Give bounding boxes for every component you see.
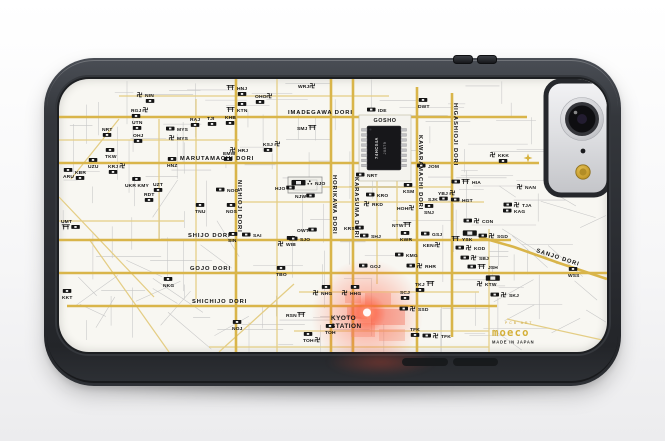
map-label-text: SMJ	[297, 126, 308, 132]
map-label-text: TJI	[207, 116, 215, 122]
shrine-torii-icon	[297, 312, 305, 317]
shrine-torii-icon	[426, 281, 434, 286]
map-label-text: RGJ	[131, 108, 142, 114]
shrine-torii-icon	[308, 125, 316, 130]
temple-manji-icon	[143, 108, 147, 112]
map-label-text: KKK	[498, 153, 509, 159]
temple-manji-icon	[489, 234, 493, 238]
map-label-text: IDE	[378, 108, 387, 114]
map-label-text: OHO	[255, 94, 267, 100]
map-label: TJA	[504, 203, 533, 210]
map-label: KEN	[423, 243, 439, 250]
map-label-text: KSJ	[263, 142, 273, 148]
map-label-text: HNJ	[237, 86, 247, 92]
map-label-text: NTW	[392, 223, 404, 229]
volume-button-1	[453, 55, 473, 64]
map-label: TKJ	[415, 281, 434, 292]
map-label-text: TJA	[522, 203, 532, 209]
map-label: DWT	[418, 98, 430, 110]
map-label-text: HNZ	[167, 163, 178, 169]
map-label-text: WRJ	[298, 84, 309, 90]
temple-manji-icon	[466, 246, 470, 250]
map-label: WRJ	[298, 84, 314, 91]
map-label-text: SNJ	[424, 210, 434, 216]
map-label-text: UKR KMY	[125, 183, 149, 189]
secondary-road	[59, 197, 154, 297]
gosho-label: GOSHO	[373, 118, 396, 124]
map-label-text: DWT	[418, 104, 430, 110]
street-name: SHICHIJO DORI	[192, 299, 247, 305]
map-label-text: NOS	[226, 209, 238, 215]
led-core	[363, 309, 371, 317]
map-label-text: KEN	[423, 243, 434, 249]
map-label: TFK	[423, 334, 452, 341]
map-label: SMJ	[297, 125, 316, 132]
map-label-text: TKW	[105, 154, 117, 160]
map-label: OWT	[297, 228, 317, 234]
temple-manji-icon	[267, 94, 271, 98]
map-label: TKW	[105, 148, 117, 160]
kyoto-pcb-map: NINRGJUTNNRTOHJRAJTJIKHBMYSMYSKTNHNJOHOW…	[59, 79, 607, 352]
map-label: SAI	[242, 233, 262, 239]
kyoto-station-label-line1: KYOTO	[331, 315, 356, 322]
temple-manji-icon	[474, 219, 478, 223]
map-label-text: KHB	[225, 115, 236, 121]
map-label-text: KKT	[62, 295, 73, 301]
map-label-text: GOJ	[370, 264, 381, 270]
map-label: KSM	[403, 183, 414, 195]
secondary-road	[89, 239, 169, 352]
map-label: NTW	[392, 222, 411, 229]
map-label-text: UZT	[153, 182, 163, 188]
castle-dots-icon	[311, 183, 313, 185]
temple-manji-icon	[517, 185, 521, 189]
product-photo-stage: NINRGJUTNNRTOHJRAJTJIKHBMYSMYSKTNHNJOHOW…	[0, 0, 665, 441]
microphone-hole	[581, 149, 586, 154]
map-label: RHR	[407, 264, 437, 271]
map-label-text: OHJ	[133, 133, 144, 139]
map-label: ARU	[63, 168, 74, 180]
bottom-port-slot-2	[453, 358, 498, 366]
brand-logo-text: moeco	[492, 327, 530, 339]
map-label-text: JOM	[428, 164, 439, 170]
map-label: KMG	[395, 253, 418, 259]
map-label-text: HOH	[397, 206, 409, 212]
camera-lens-pupil	[577, 114, 587, 124]
map-label-text: SJK	[428, 197, 438, 203]
map-label: TFK	[410, 327, 420, 337]
map-label-text: OWT	[297, 228, 309, 234]
map-label-text: NIN	[145, 93, 154, 99]
map-label-text: RDT	[144, 192, 155, 198]
map-label-text: SJO	[300, 237, 310, 243]
map-label: KBR	[75, 170, 86, 180]
map-label: NRT	[102, 127, 113, 137]
map-label: HGT	[451, 198, 473, 204]
map-label-text: WSS	[568, 273, 580, 279]
map-label: IDE	[367, 108, 387, 114]
phone-case-bumper: NINRGJUTNNRTOHJRAJTJIKHBMYSMYSKTNHNJOHOW…	[44, 58, 621, 386]
volume-button-2	[477, 55, 497, 64]
shrine-torii-icon	[227, 107, 235, 112]
street-name: NISHIOJI DORI	[236, 180, 242, 233]
map-label-text: ARU	[63, 174, 74, 180]
chip-marking-line2: J0879	[383, 142, 387, 155]
map-label-text: RKD	[372, 202, 383, 208]
map-label-text: SBJ	[479, 256, 489, 262]
map-label-text: MYS	[177, 136, 189, 142]
map-label-text: MYS	[177, 127, 189, 133]
temple-manji-icon	[409, 206, 413, 210]
map-label-text: JSH	[488, 265, 498, 271]
map-label: RAJ	[190, 117, 200, 127]
map-label: CON	[464, 219, 494, 226]
map-label-text: TNU	[195, 209, 206, 215]
map-label-text: SCJ	[400, 290, 410, 296]
map-label-text: TFK	[441, 334, 451, 340]
map-label: UTN	[132, 120, 143, 130]
street-name: MARUTAMACHI DORI	[180, 156, 254, 162]
map-label-text: NHG	[321, 291, 332, 297]
map-label-text: KAG	[514, 209, 525, 215]
map-label: JSH	[468, 264, 499, 271]
map-label: HOH	[397, 206, 413, 213]
street-name: SHIJO DORI	[188, 233, 231, 239]
shrine-torii-icon	[462, 179, 470, 184]
kyoto-station-label-line2: STATION	[331, 323, 362, 330]
temple-manji-icon	[169, 136, 173, 140]
map-label: GSJ	[421, 232, 442, 238]
street-name: HIGASHIOJI DORI	[452, 103, 458, 166]
temple-manji-icon	[275, 142, 279, 146]
temple-manji-icon	[433, 334, 437, 338]
map-label: UZT	[153, 182, 163, 192]
map-label: NOO	[216, 188, 239, 194]
temple-manji-icon	[514, 203, 518, 207]
made-in-japan-text: MADE IN JAPAN	[492, 340, 534, 345]
ic-chip: 74HC04A J0879	[362, 126, 407, 170]
map-label: KHB	[225, 115, 236, 125]
map-label: RDT	[144, 192, 155, 202]
map-label-text: KTW	[485, 282, 497, 288]
map-label-text: UZU	[88, 164, 99, 170]
map-label: KOD	[456, 246, 486, 253]
map-label: NIN	[137, 93, 154, 103]
map-label: SNJ	[424, 204, 434, 216]
map-label-text: TKJ	[415, 282, 425, 288]
map-label-text: HHG	[350, 291, 361, 297]
map-label-text: RHR	[425, 264, 436, 270]
map-label: NJW	[295, 194, 315, 200]
map-label-text: KSM	[403, 189, 414, 195]
map-label: NKG	[163, 277, 174, 289]
camera-lens-glint	[574, 111, 578, 115]
map-label-text: KMG	[406, 253, 418, 259]
chip-marking-line1: 74HC04A	[374, 137, 379, 159]
map-label-text: SSD	[418, 307, 429, 313]
map-label-text: SGD	[497, 234, 508, 240]
map-label-text: NOJ	[232, 326, 243, 332]
temple-manji-icon	[310, 84, 314, 88]
bottom-port-slot-1	[402, 358, 448, 366]
map-label: MYS	[169, 136, 188, 143]
map-label-text: KRJ	[108, 164, 118, 170]
map-label: KAG	[503, 209, 525, 215]
map-label-text: NAN	[525, 185, 536, 191]
map-label: KWR	[400, 231, 412, 243]
camera-module	[546, 81, 607, 195]
flash-led-center	[579, 168, 586, 175]
map-label-text: TOH	[303, 338, 314, 344]
map-label-text: UMT	[61, 219, 72, 225]
street-name: HORIKAWA DORI	[331, 175, 337, 234]
map-label: NOJ	[232, 320, 243, 332]
temple-manji-icon	[490, 153, 494, 157]
map-label-text: TBO	[276, 272, 287, 278]
map-label-text: YSK	[462, 237, 473, 243]
map-label: RSN	[286, 312, 305, 319]
map-label-text: UTN	[132, 120, 143, 126]
temple-manji-icon	[278, 242, 282, 246]
map-label: OHO	[255, 94, 271, 104]
map-label-text: NKG	[163, 283, 174, 289]
map-label-text: NRT	[102, 127, 113, 133]
map-label: SCJ	[400, 290, 410, 300]
map-label-text: NJW	[295, 194, 307, 200]
map-label-text: HGT	[462, 198, 473, 204]
map-label: OHJ	[133, 133, 144, 143]
map-label-text: TFK	[410, 327, 420, 333]
map-label-text: KBR	[75, 170, 86, 176]
temple-manji-icon	[435, 243, 439, 247]
map-label: UKR KMY	[125, 177, 149, 189]
map-label: KRO	[366, 193, 388, 199]
map-label-text: KWR	[400, 237, 412, 243]
map-label-text: WIB	[286, 242, 296, 248]
map-label-text: NRT	[367, 173, 378, 179]
pcb-map-plate: NINRGJUTNNRTOHJRAJTJIKHBMYSMYSKTNHNJOHOW…	[59, 79, 607, 352]
temple-manji-icon	[477, 282, 481, 286]
map-label-text: YBJ	[438, 191, 448, 197]
castle-dots-icon	[307, 183, 309, 185]
shrine-torii-icon	[227, 85, 235, 90]
gold-star-icon	[524, 154, 533, 163]
map-label-text: SKJ	[509, 293, 519, 299]
map-label-text: KRO	[377, 193, 388, 199]
map-label: KKT	[62, 289, 73, 301]
brand-logo: PCB ART moeco MADE IN JAPAN	[492, 321, 534, 345]
map-label-text: RAJ	[190, 117, 200, 123]
map-label: MYS	[166, 127, 189, 133]
brand-logo-small: PCB ART	[505, 321, 533, 325]
shrine-torii-icon	[478, 264, 486, 269]
shrine-torii-icon	[403, 222, 411, 227]
map-label-text: NJO	[315, 181, 326, 187]
map-label: NAN	[517, 185, 536, 192]
map-label-text: GSJ	[432, 232, 442, 238]
map-label-text: HIA	[472, 180, 481, 186]
street-name: KAWARAMACHI DORI	[417, 135, 423, 210]
map-label-text: SHJ	[371, 234, 381, 240]
map-label-text: KOD	[474, 246, 486, 252]
map-label: KKK	[490, 153, 509, 163]
street-name: GOJO DORI	[190, 266, 231, 272]
map-label-text: CON	[482, 219, 494, 225]
map-label-text: HJO	[275, 186, 286, 192]
map-label-text: KTN	[237, 108, 248, 114]
map-label: KRJ	[108, 164, 124, 174]
temple-manji-icon	[501, 293, 505, 297]
map-label-text: RSN	[286, 313, 297, 319]
map-label-text: SAI	[253, 233, 262, 239]
castle-dots-icon	[309, 180, 311, 182]
street-name: KARASUMA DORI	[353, 177, 359, 238]
street-name: IMADEGAWA DORI	[288, 110, 353, 116]
map-label-text: TOH	[325, 330, 336, 336]
secondary-road	[219, 284, 294, 352]
map-label-text: HRJ	[238, 148, 248, 154]
